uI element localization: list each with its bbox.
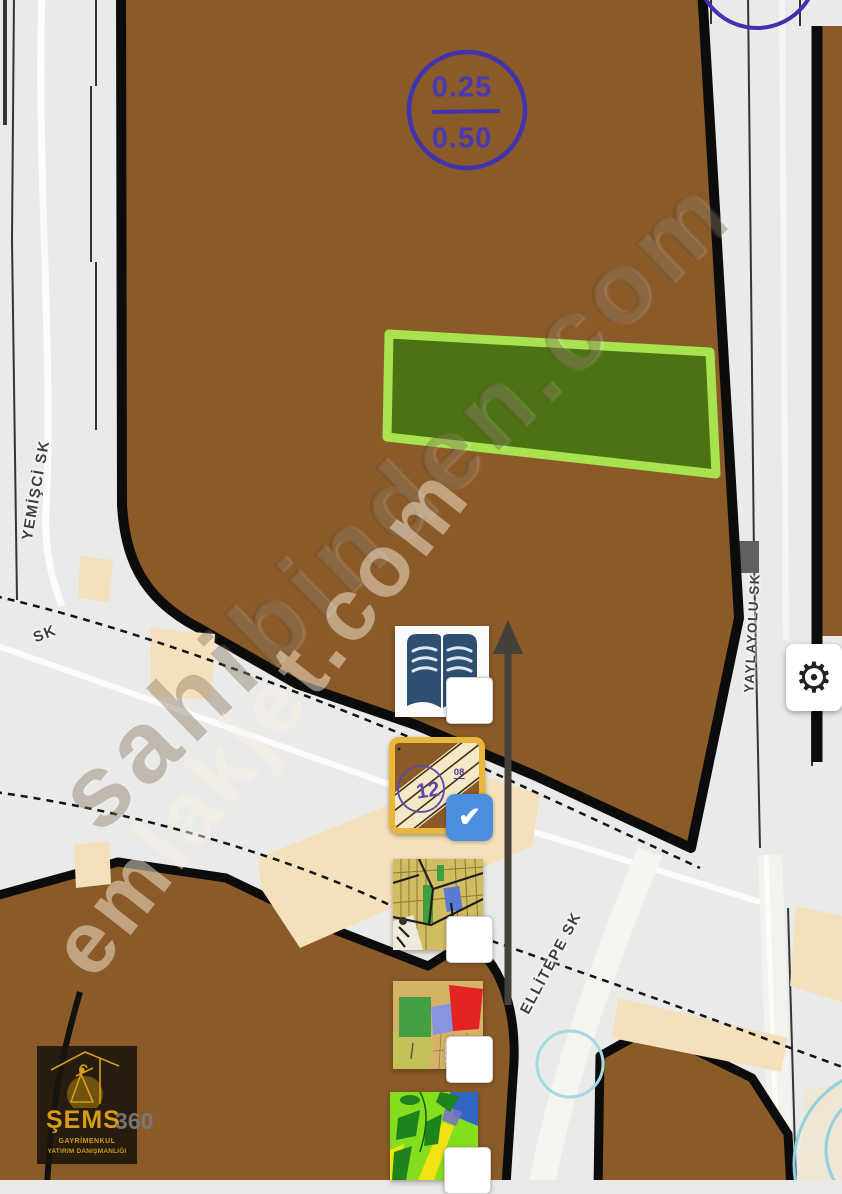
layer-checkbox-master-plan[interactable] <box>446 1036 493 1083</box>
right-edge-parcel <box>821 26 842 636</box>
settings-button[interactable]: ⚙ <box>786 644 842 711</box>
zoning-ratio-bottom: 0.50 <box>432 123 492 156</box>
logo-line2: YATIRIM DANIŞMANLIĞI <box>37 1148 137 1155</box>
parcel-number-label: 12 <box>415 777 441 804</box>
layer-checkbox-zoning-plan[interactable] <box>446 916 493 963</box>
gear-icon: ⚙ <box>795 657 833 699</box>
road-code-label: 08 <box>454 767 465 779</box>
agency-logo: ŞEMS 360 GAYRİMENKUL YATIRIM DANIŞMANLIĞ… <box>37 1046 137 1164</box>
map-view: { "map": { "zoning_ratio": { "top": "0.2… <box>0 0 842 1180</box>
layer-checkbox-cadastre-road[interactable]: ✔ <box>446 794 493 841</box>
logo-brand-text: ŞEMS <box>46 1106 121 1135</box>
zoning-ratio-top: 0.25 <box>432 72 492 105</box>
check-icon: ✔ <box>458 802 481 833</box>
layer-checkbox-register-book[interactable] <box>446 677 493 724</box>
logo-suffix-text: 360 <box>115 1108 153 1135</box>
layer-checkbox-environment-plan[interactable] <box>444 1147 491 1194</box>
logo-line1: GAYRİMENKUL <box>37 1138 137 1145</box>
dervish-icon <box>37 1046 137 1108</box>
